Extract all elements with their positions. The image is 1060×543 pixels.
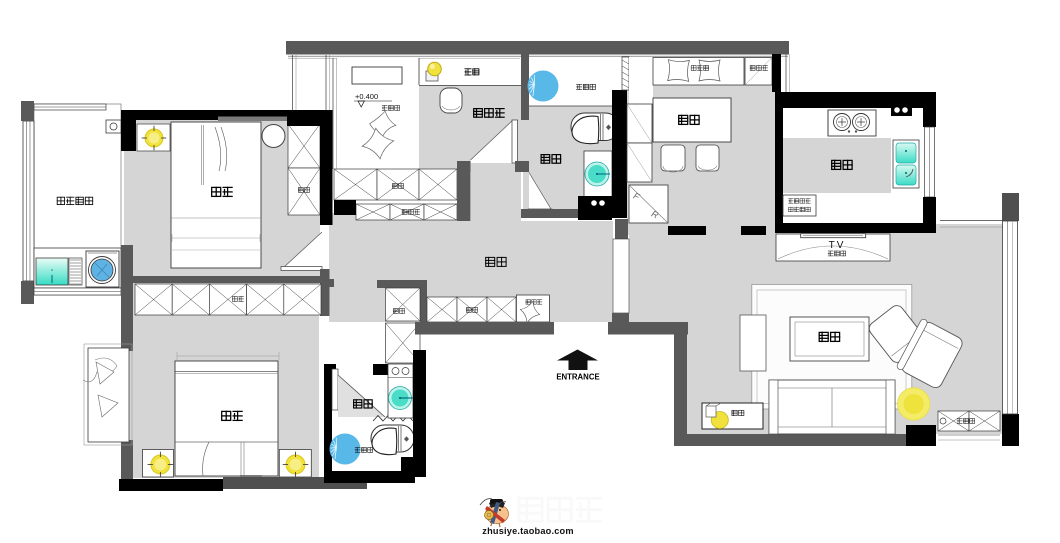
svg-text:zhusiye.taobao.com: zhusiye.taobao.com [482, 526, 573, 536]
svg-text:TV: TV [829, 240, 846, 251]
svg-text:ENTRANCE: ENTRANCE [556, 373, 599, 382]
svg-text:+0.400: +0.400 [355, 92, 378, 101]
